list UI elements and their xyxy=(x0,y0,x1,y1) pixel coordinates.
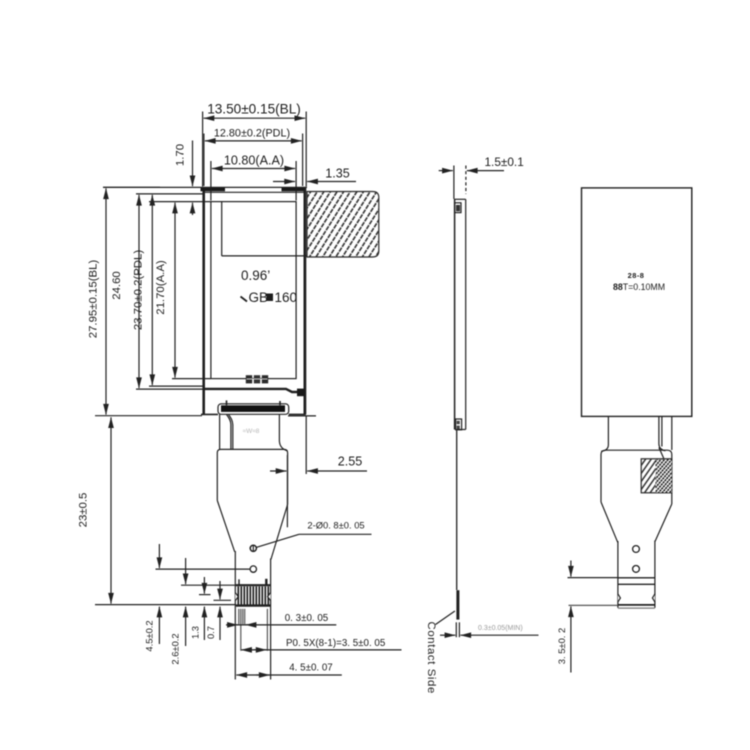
svg-text:0. 3±0. 05: 0. 3±0. 05 xyxy=(285,613,329,624)
svg-text:4.5±0.2: 4.5±0.2 xyxy=(144,620,155,651)
svg-text:GB: GB xyxy=(249,290,269,305)
svg-text:Contact Side: Contact Side xyxy=(425,622,437,694)
svg-text:3. 5±0. 2: 3. 5±0. 2 xyxy=(556,628,567,664)
svg-text:1.5±0.1: 1.5±0.1 xyxy=(485,155,524,169)
svg-text:88T=0.10MM: 88T=0.10MM xyxy=(613,282,665,292)
svg-text:2-Ø0. 8±0. 05: 2-Ø0. 8±0. 05 xyxy=(307,520,364,531)
svg-text:1.3: 1.3 xyxy=(190,626,201,639)
svg-text:2.55: 2.55 xyxy=(338,455,363,469)
svg-text:23±0.5: 23±0.5 xyxy=(78,493,90,528)
svg-text:27.95±0.15(BL): 27.95±0.15(BL) xyxy=(88,260,100,339)
svg-text:0.7: 0.7 xyxy=(205,626,216,639)
svg-text:23.70±0.2(PDL): 23.70±0.2(PDL) xyxy=(133,250,145,331)
svg-text:10.80(A.A): 10.80(A.A) xyxy=(224,153,284,167)
svg-text:≈W≈8: ≈W≈8 xyxy=(243,428,260,435)
svg-text:0.3±0.05(MIN): 0.3±0.05(MIN) xyxy=(478,625,523,632)
svg-text:28-8: 28-8 xyxy=(628,271,645,280)
svg-text:160: 160 xyxy=(275,290,298,305)
svg-text:0.96’: 0.96’ xyxy=(241,268,270,283)
svg-text:1.35: 1.35 xyxy=(325,166,350,180)
svg-text:1.70: 1.70 xyxy=(175,144,187,166)
svg-text:24.60: 24.60 xyxy=(111,271,123,300)
svg-text:13.50±0.15(BL): 13.50±0.15(BL) xyxy=(207,102,301,117)
svg-text:21.70(A.A): 21.70(A.A) xyxy=(155,260,167,315)
svg-text:P0. 5X(8-1)=3. 5±0. 05: P0. 5X(8-1)=3. 5±0. 05 xyxy=(286,638,386,649)
svg-text:2.6±0.2: 2.6±0.2 xyxy=(170,633,181,664)
svg-text:4. 5±0. 07: 4. 5±0. 07 xyxy=(289,663,333,674)
svg-text:12.80±0.2(PDL): 12.80±0.2(PDL) xyxy=(214,128,290,140)
